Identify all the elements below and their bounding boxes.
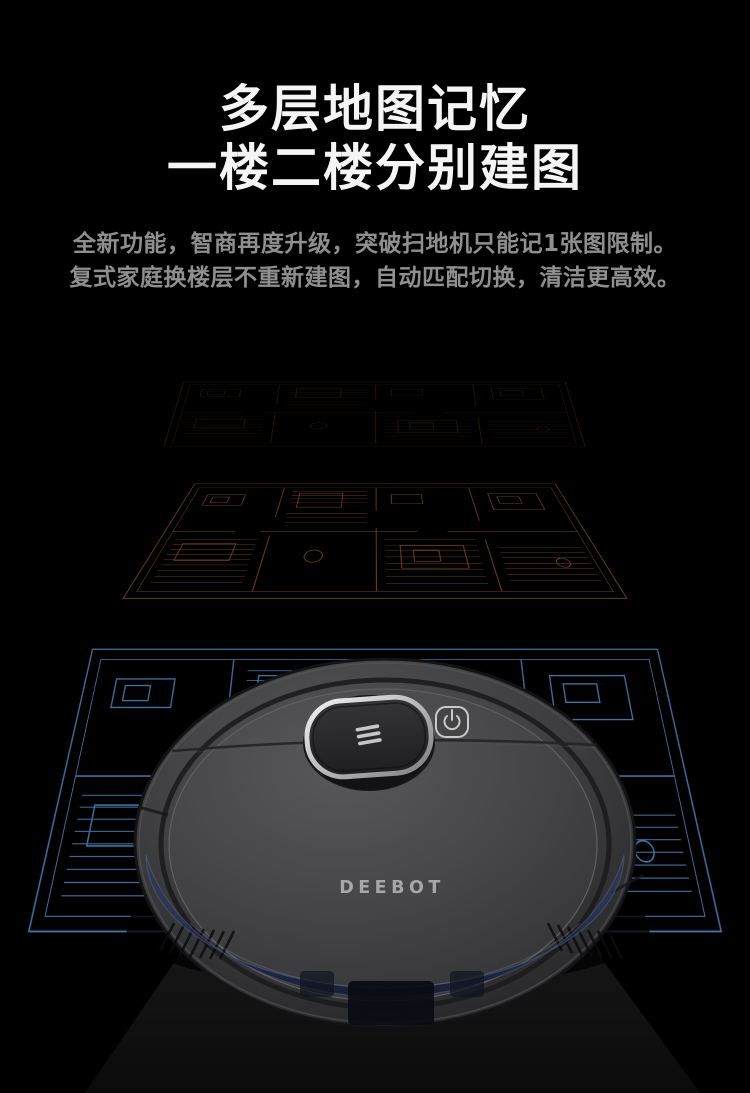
robot-vacuum: DEEBOT	[0, 593, 750, 1093]
floor-map-middle	[120, 483, 630, 600]
headline-line-2: 一楼二楼分别建图	[0, 139, 750, 198]
subheadline: 全新功能，智商再度升级，突破扫地机只能记1张图限制。 复式家庭换楼层不重新建图，…	[0, 227, 750, 295]
subheadline-line-1: 全新功能，智商再度升级，突破扫地机只能记1张图限制。	[0, 227, 750, 261]
hero-text: 多层地图记忆 一楼二楼分别建图 全新功能，智商再度升级，突破扫地机只能记1张图限…	[0, 0, 750, 295]
subheadline-line-2: 复式家庭换楼层不重新建图，自动匹配切换，清洁更高效。	[0, 261, 750, 295]
tank-latch-right	[450, 971, 484, 997]
headline-line-1: 多层地图记忆	[0, 80, 750, 139]
headline: 多层地图记忆 一楼二楼分别建图	[0, 80, 750, 198]
product-banner: 多层地图记忆 一楼二楼分别建图 全新功能，智商再度升级，突破扫地机只能记1张图限…	[0, 0, 750, 1093]
tank-latch-left	[300, 971, 334, 997]
lidar-turret	[305, 695, 434, 779]
power-button	[436, 707, 468, 737]
floor-map-upper	[162, 381, 587, 447]
tank-center-notch	[348, 981, 434, 1025]
deebot-logo: DEEBOT	[339, 878, 445, 898]
